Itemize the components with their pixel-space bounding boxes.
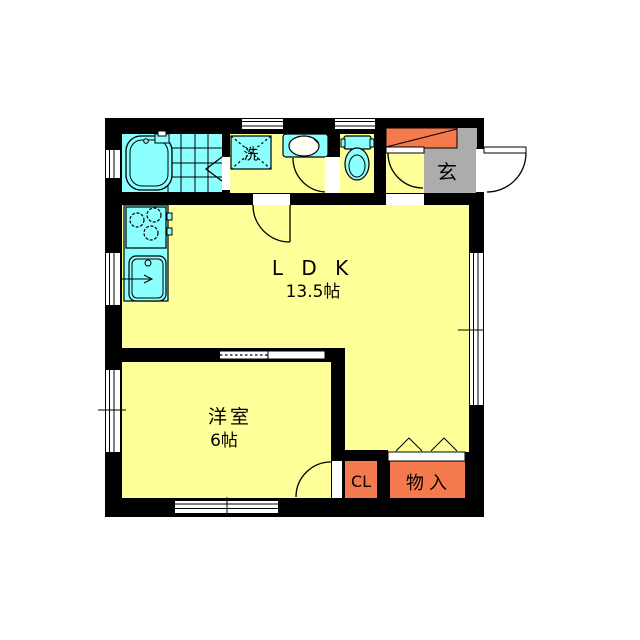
- entrance-door-opening: [476, 149, 485, 192]
- western-room-size-label: 6帖: [210, 431, 238, 451]
- ldk-floor-extension: [345, 348, 469, 452]
- window-bathroom-left: [106, 150, 120, 178]
- floor-plan-drawing: 洗: [0, 0, 640, 640]
- ldk-size-label: 13.5帖: [286, 282, 341, 302]
- washbasin-icon: [283, 134, 328, 157]
- laundry-label: 洗: [243, 145, 258, 163]
- hall-door-opening: [386, 194, 424, 205]
- entrance-label: 玄: [437, 160, 457, 184]
- stove-icon: [126, 207, 172, 248]
- western-room-floor: [122, 362, 331, 498]
- wall-above-closet: [345, 450, 388, 461]
- storage-label: 物入: [406, 473, 452, 494]
- bathroom-door-opening: [222, 157, 230, 190]
- closet-label: CL: [351, 472, 371, 491]
- western-room-name-label: 洋室: [208, 406, 252, 428]
- bathtub-icon: [126, 131, 172, 190]
- toilet-door-opening: [325, 157, 340, 193]
- window-kitchen-left: [106, 253, 120, 305]
- closet-door-leaf: [332, 461, 342, 498]
- window-top-toilet: [335, 119, 375, 129]
- genkan-floor-upper: [457, 128, 477, 148]
- entrance-hall-floor: [386, 148, 424, 193]
- washroom-door-opening: [253, 194, 290, 205]
- floor-plan-image: 洗: [0, 0, 640, 640]
- window-top-washroom: [242, 119, 283, 129]
- entrance-door-leaf: [484, 147, 526, 153]
- sliding-door: [220, 351, 325, 359]
- ldk-name-label: L D K: [272, 256, 354, 280]
- entrance-door-arc: [487, 153, 526, 192]
- hall-door-leaf: [386, 147, 424, 153]
